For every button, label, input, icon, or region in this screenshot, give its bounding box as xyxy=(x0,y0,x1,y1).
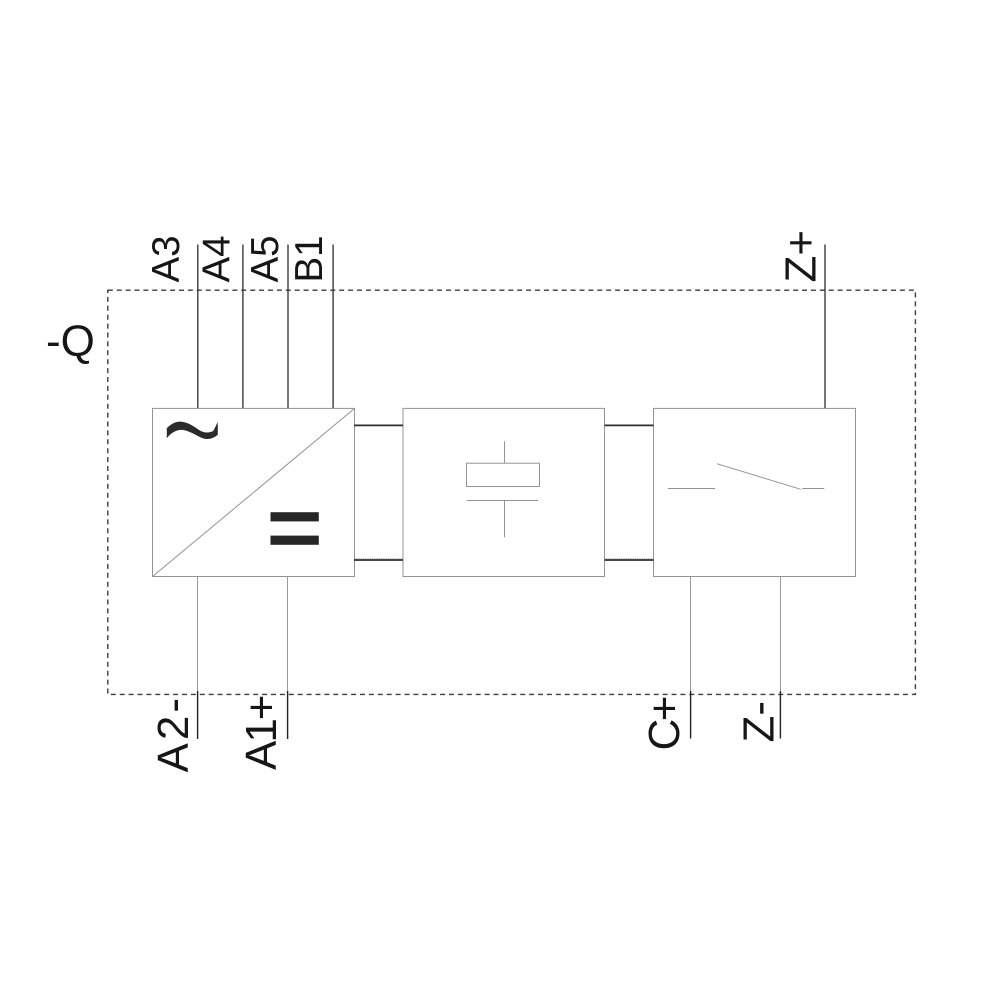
svg-text:C+: C+ xyxy=(640,697,689,750)
svg-text:A1+: A1+ xyxy=(237,696,286,770)
svg-text:A3: A3 xyxy=(145,235,188,282)
svg-text:A2-: A2- xyxy=(149,695,198,772)
svg-text:-Q: -Q xyxy=(46,317,95,366)
svg-text:A4: A4 xyxy=(195,235,238,282)
svg-text:Z+: Z+ xyxy=(777,230,826,283)
svg-text:A5: A5 xyxy=(244,235,287,282)
svg-text:B1: B1 xyxy=(288,235,331,282)
svg-text:Z-: Z- xyxy=(735,701,784,743)
